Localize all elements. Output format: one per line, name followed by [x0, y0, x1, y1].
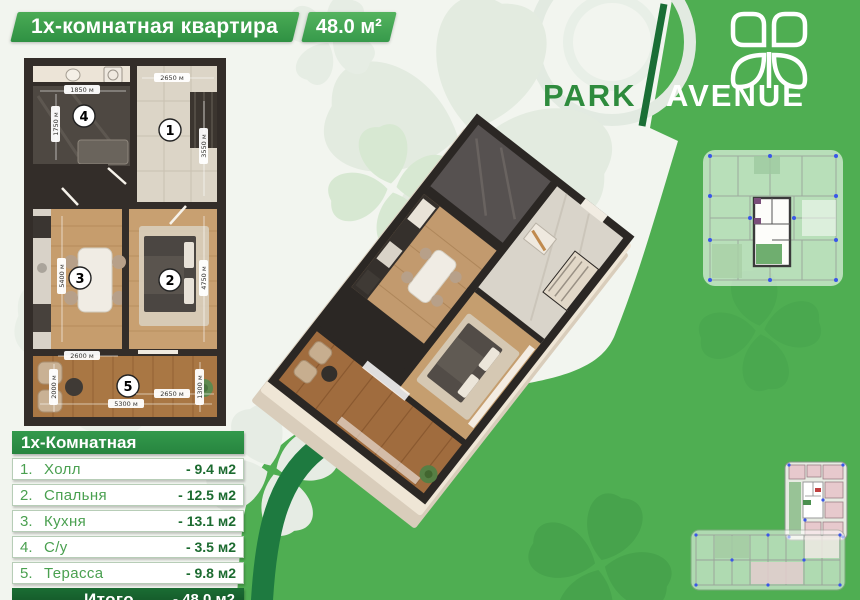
building-plate-wide [689, 528, 847, 592]
legend-row: 5. Терасса - 9.8 м2 [12, 562, 244, 584]
room-number: 4 [79, 110, 88, 125]
legend-row: 1. Холл - 9.4 м2 [12, 458, 244, 480]
legend-total-bar: Итого - 48.0 м2 [12, 588, 244, 600]
legend-title: 1х-Комнатная [21, 433, 136, 453]
room-number: 1 [165, 124, 174, 139]
row-name: Холл [44, 461, 186, 478]
render-3d [222, 92, 682, 532]
logo-leaf-icon [728, 10, 810, 90]
row-name: С/у [44, 539, 186, 556]
total-label: Итого [45, 590, 173, 600]
svg-text:1850 м: 1850 м [70, 86, 94, 94]
row-number: 1. [20, 461, 44, 478]
row-name: Терасса [44, 565, 186, 582]
svg-text:1300 м: 1300 м [196, 375, 204, 399]
toilet [66, 69, 80, 81]
svg-text:1750 м: 1750 м [52, 112, 60, 136]
row-number: 3. [20, 513, 44, 530]
row-area: - 3.5 м2 [186, 539, 236, 555]
room-legend: 1х-Комнатная 1. Холл - 9.4 м2 2. Спальня… [12, 431, 244, 600]
svg-text:3550 м: 3550 м [200, 134, 208, 158]
row-area: - 12.5 м2 [178, 487, 236, 503]
row-area: - 9.4 м2 [186, 461, 236, 477]
row-number: 4. [20, 539, 44, 556]
legend-row: 2. Спальня - 12.5 м2 [12, 484, 244, 506]
legend-title-bar: 1х-Комнатная [12, 431, 244, 454]
room-number: 3 [75, 272, 84, 287]
terrace-slider [138, 350, 178, 354]
row-number: 2. [20, 487, 44, 504]
svg-text:2000 м: 2000 м [50, 375, 58, 399]
room-number: 5 [123, 380, 132, 395]
apartment-area-banner: 48.0 м² [301, 12, 396, 42]
svg-text:5300 м: 5300 м [114, 400, 138, 408]
svg-text:4750 м: 4750 м [200, 266, 208, 290]
legend-row: 4. С/у - 3.5 м2 [12, 536, 244, 558]
svg-text:2650 м: 2650 м [160, 74, 184, 82]
washer [104, 67, 122, 83]
svg-text:2600 м: 2600 м [70, 352, 94, 360]
highlighted-unit [754, 198, 790, 266]
legend-row: 3. Кухня - 13.1 м2 [12, 510, 244, 532]
floorplan-2d: 1 2 3 4 5 1850 м 1750 м 2650 м 3550 м 54… [18, 56, 230, 428]
row-area: - 9.8 м2 [186, 565, 236, 581]
row-area: - 13.1 м2 [178, 513, 236, 529]
svg-text:5400 м: 5400 м [58, 264, 66, 288]
apartment-type-banner: 1х-комнатная квартира [10, 12, 299, 42]
row-name: Кухня [44, 513, 178, 530]
total-value: - 48.0 м2 [173, 591, 235, 600]
row-number: 5. [20, 565, 44, 582]
apartment-area-label: 48.0 м² [316, 16, 382, 39]
svg-text:2650 м: 2650 м [160, 390, 184, 398]
room-number: 2 [165, 274, 174, 289]
bathtub [78, 140, 128, 164]
flyer-canvas: 1х-комнатная квартира 48.0 м² PARK AVENU… [0, 0, 860, 600]
coffee-table [65, 378, 83, 396]
building-plate-top [698, 144, 850, 294]
apartment-type-label: 1х-комнатная квартира [31, 15, 278, 39]
row-name: Спальня [44, 487, 178, 504]
